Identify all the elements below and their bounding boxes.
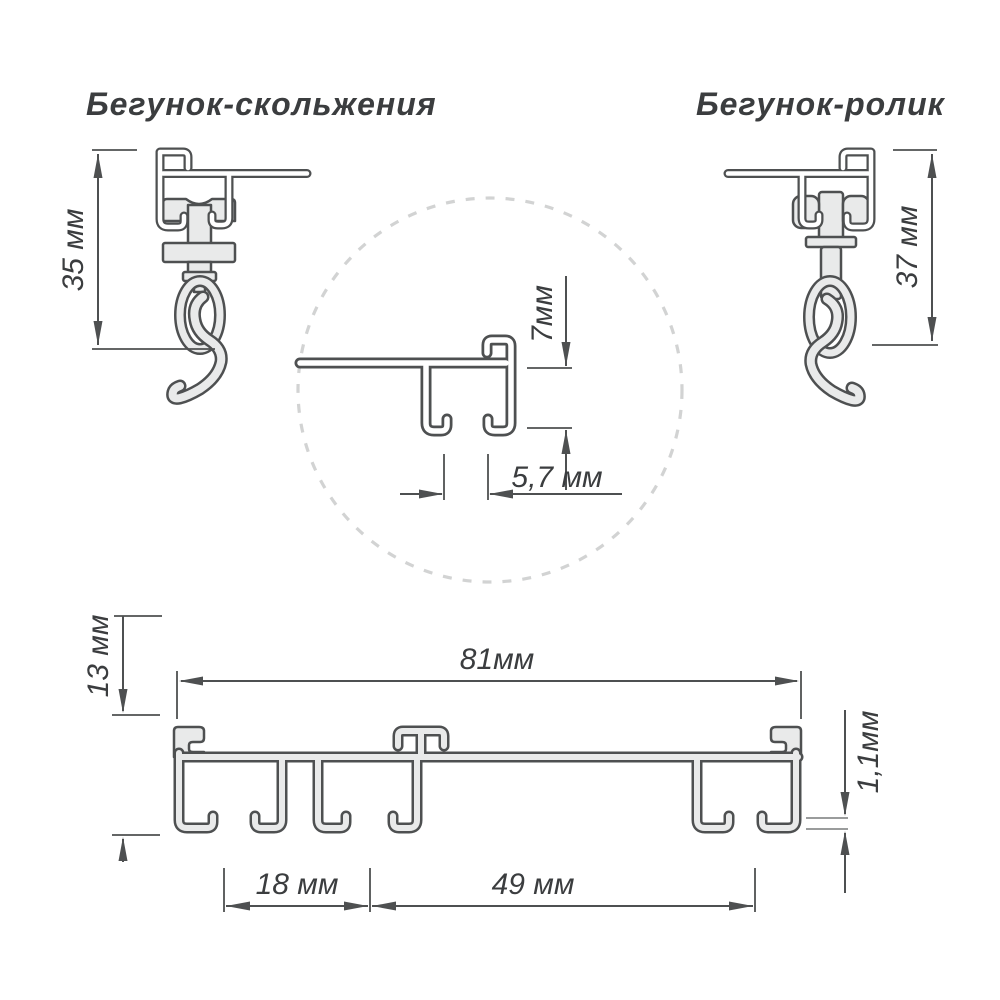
dim-5-7mm-label: 5,7 мм <box>511 461 602 495</box>
magnifier-circle <box>298 198 682 582</box>
diagram-linework <box>0 0 1000 1000</box>
glider-flange <box>163 243 235 262</box>
glider-stem <box>188 205 211 245</box>
dim-1-1mm <box>806 710 850 893</box>
slider-runner-figure <box>92 150 307 398</box>
roller-crossbar <box>806 237 856 247</box>
dim-7mm-label: 7мм <box>526 285 560 343</box>
dim-18mm-label: 18 мм <box>256 868 339 902</box>
dim-1-1mm-label: 1,1мм <box>852 711 886 794</box>
title-roller-runner: Бегунок-ролик <box>696 86 945 123</box>
title-slider-runner: Бегунок-скольжения <box>86 86 437 123</box>
dim-49mm-label: 49 мм <box>492 868 575 902</box>
dim-13mm <box>112 616 162 862</box>
dim-81mm <box>177 671 801 719</box>
dim-81mm-label: 81мм <box>460 643 535 677</box>
dim-37mm-label: 37 мм <box>891 206 925 289</box>
dim-35mm-label: 35 мм <box>57 209 91 292</box>
technical-diagram: Бегунок-скольжения Бегунок-ролик 35 мм 3… <box>0 0 1000 1000</box>
dim-13mm-label: 13 мм <box>82 615 116 698</box>
